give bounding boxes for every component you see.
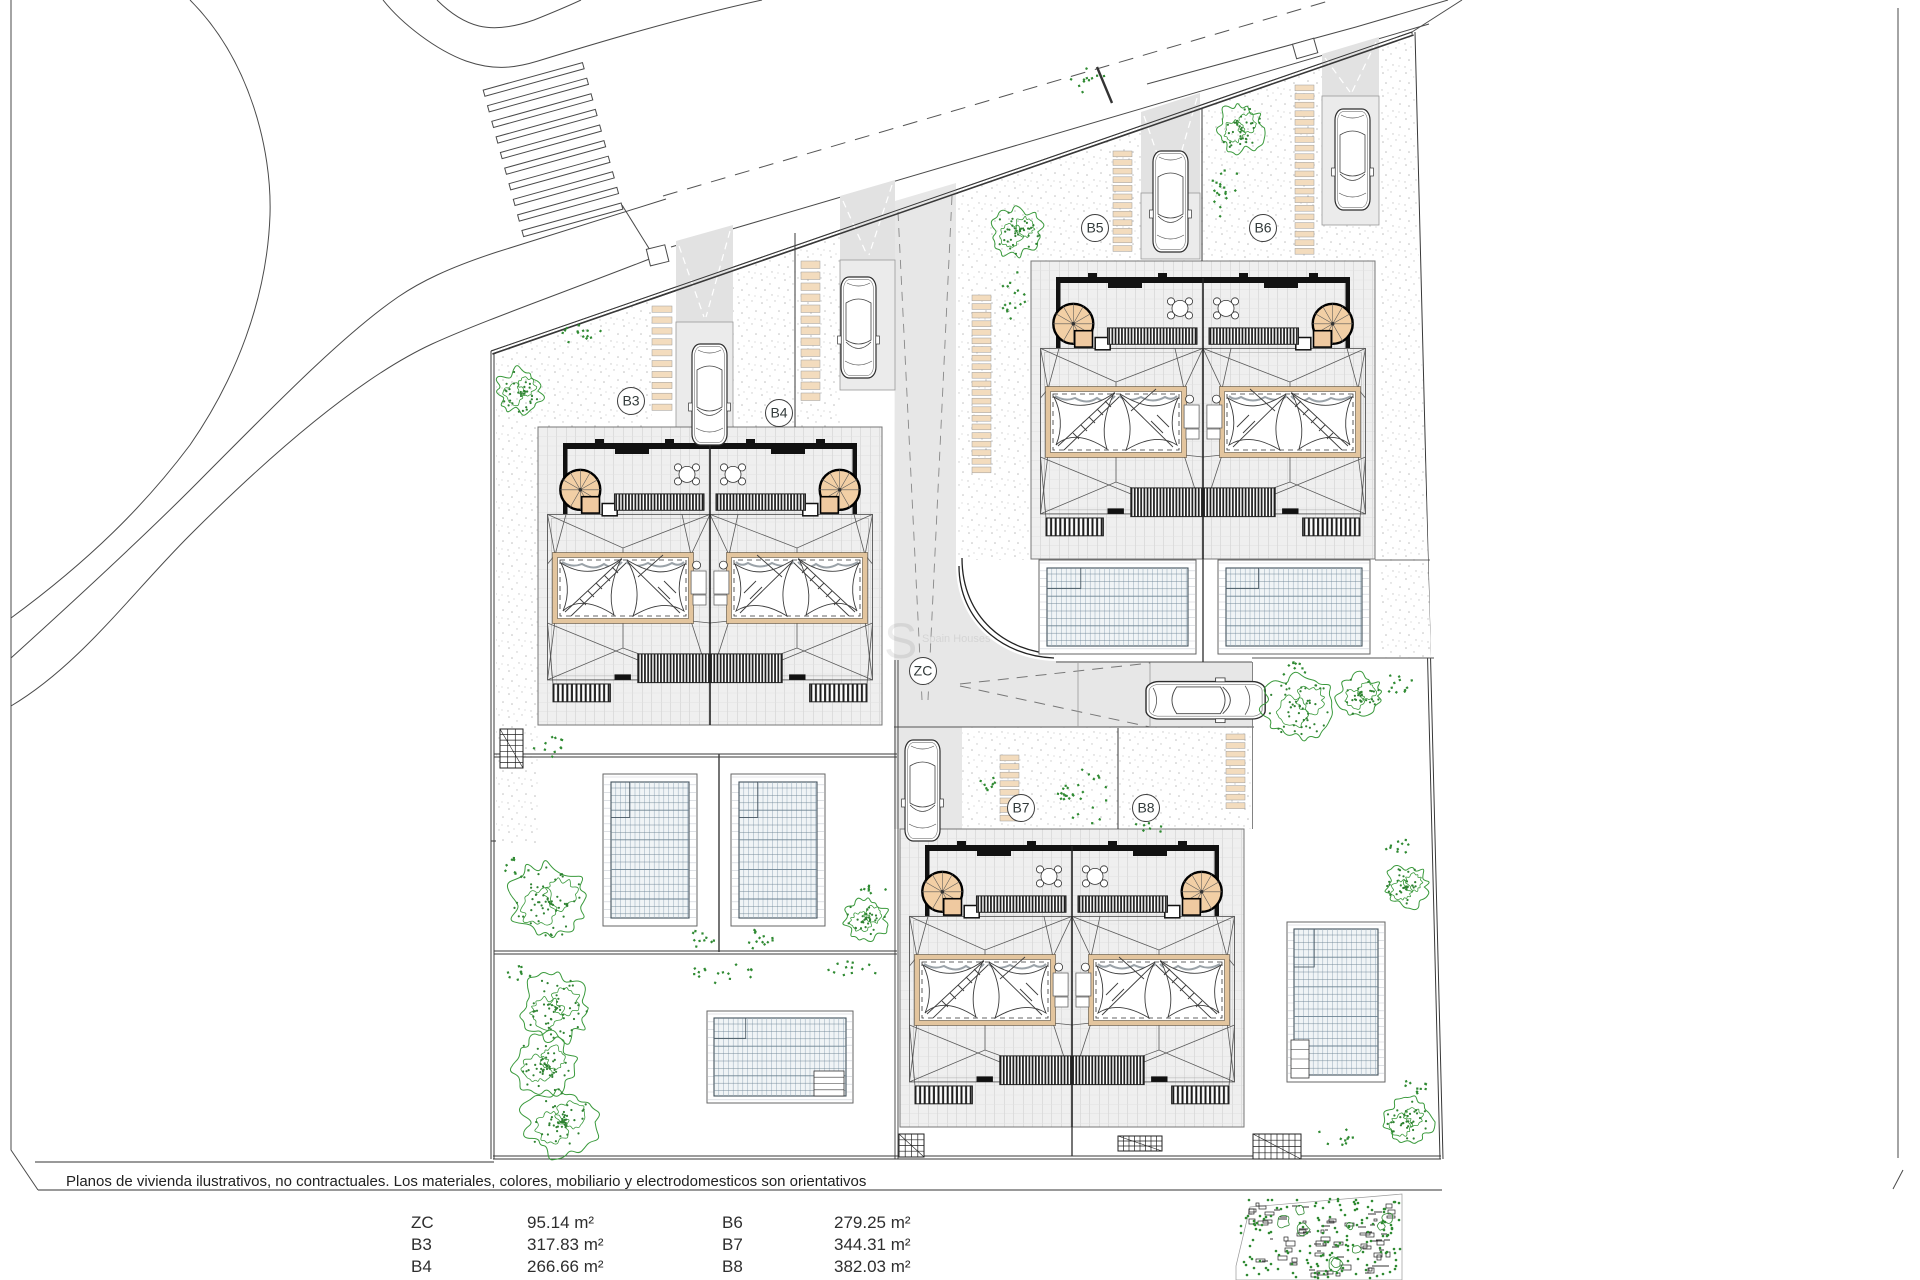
svg-text:344.31 m²: 344.31 m² bbox=[834, 1235, 911, 1254]
svg-text:B6: B6 bbox=[722, 1213, 743, 1232]
svg-text:B6: B6 bbox=[1254, 220, 1271, 236]
svg-text:382.03 m²: 382.03 m² bbox=[834, 1257, 911, 1276]
svg-text:266.66 m²: 266.66 m² bbox=[527, 1257, 604, 1276]
svg-text:B8: B8 bbox=[722, 1257, 743, 1276]
svg-text:Spain Houses: Spain Houses bbox=[922, 633, 991, 645]
svg-text:ZC: ZC bbox=[914, 663, 933, 679]
svg-text:B7: B7 bbox=[1012, 800, 1029, 816]
svg-text:B7: B7 bbox=[722, 1235, 743, 1254]
svg-text:Planos de vivienda ilustrativo: Planos de vivienda ilustrativos, no cont… bbox=[66, 1173, 866, 1190]
svg-text:B5: B5 bbox=[1086, 220, 1103, 236]
svg-text:S: S bbox=[884, 613, 917, 669]
svg-text:B8: B8 bbox=[1137, 800, 1154, 816]
svg-text:B3: B3 bbox=[622, 393, 639, 409]
svg-text:B4: B4 bbox=[770, 405, 787, 421]
svg-text:95.14 m²: 95.14 m² bbox=[527, 1213, 594, 1232]
svg-text:317.83 m²: 317.83 m² bbox=[527, 1235, 604, 1254]
svg-text:ZC: ZC bbox=[411, 1213, 434, 1232]
svg-text:B3: B3 bbox=[411, 1235, 432, 1254]
svg-text:279.25 m²: 279.25 m² bbox=[834, 1213, 911, 1232]
svg-text:B4: B4 bbox=[411, 1257, 432, 1276]
